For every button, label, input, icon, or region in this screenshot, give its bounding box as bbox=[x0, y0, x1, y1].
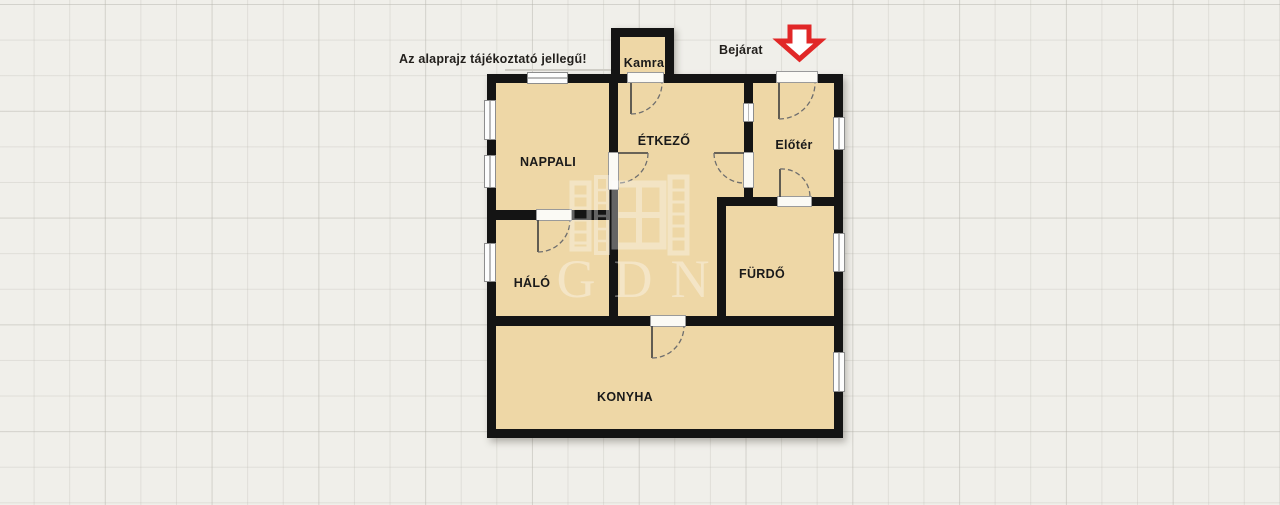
floor-plan-page: { "annotation": { "disclaimer": "Az alap… bbox=[0, 0, 1280, 505]
entrance-label: Bejárat bbox=[719, 43, 763, 57]
wall-kamra-top bbox=[611, 28, 674, 37]
door-opening-etkezo-eloter bbox=[743, 152, 754, 188]
door-opening-nappali-etkezo bbox=[608, 152, 619, 190]
room-label-halo: HÁLÓ bbox=[514, 276, 551, 290]
door-opening-konyha bbox=[650, 315, 686, 327]
wall-outer-bottom bbox=[487, 429, 843, 438]
window-halo-left bbox=[484, 243, 496, 282]
window-konyha-right bbox=[833, 352, 845, 392]
window-nappali-left-2 bbox=[484, 155, 496, 188]
door-opening-nappali-halo bbox=[536, 209, 572, 221]
room-label-nappali: NAPPALI bbox=[520, 155, 576, 169]
room-label-furdo: FÜRDŐ bbox=[739, 267, 785, 281]
room-label-etkezo: ÉTKEZŐ bbox=[638, 134, 691, 148]
room-label-konyha: KONYHA bbox=[597, 390, 653, 404]
gdn-watermark-text: GDN bbox=[527, 252, 757, 306]
window-nappali-top bbox=[527, 72, 568, 84]
room-label-kamra: Kamra bbox=[624, 56, 664, 70]
window-nappali-left-1 bbox=[484, 100, 496, 140]
door-opening-entrance bbox=[776, 71, 818, 83]
door-opening-kamra bbox=[627, 72, 664, 83]
window-etkezo-eloter bbox=[743, 103, 754, 122]
disclaimer-text: Az alaprajz tájékoztató jellegű! bbox=[399, 52, 587, 66]
window-sill-line bbox=[505, 69, 611, 71]
door-opening-eloter-furdo bbox=[777, 196, 812, 207]
room-label-eloter: Előtér bbox=[775, 138, 812, 152]
window-furdo-right bbox=[833, 233, 845, 272]
window-eloter-right bbox=[833, 117, 845, 150]
